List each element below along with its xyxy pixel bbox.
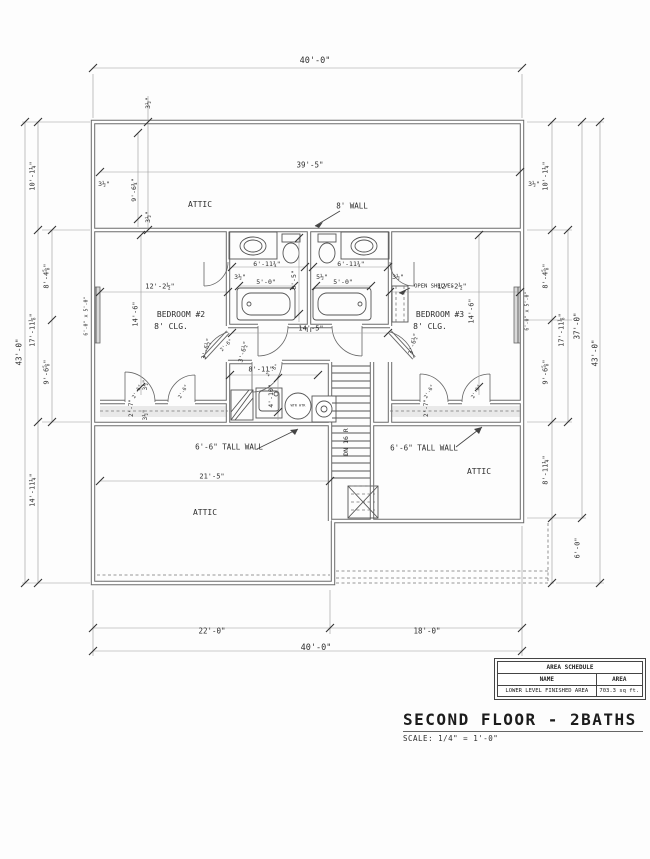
label-dim-8-4-right: 8'-4⅝" [543,263,550,288]
label-room-attic-top: ATTIC [188,201,212,209]
label-dim-4-10: 4'-10" [268,384,275,407]
area-row-value: 703.3 sq ft. [596,686,642,697]
toilet-right-tank [318,234,336,242]
label-dim-3-5-attic-right: 3½" [528,181,540,188]
open-shelves-glyph [392,286,408,322]
drawing-title: SECOND FLOOR - 2BATHS [403,710,643,732]
label-dim-43-right: 43'-0" [591,339,599,366]
label-dim-22-0: 22'-0" [198,627,225,635]
toilet-right-icon [319,243,335,263]
walls [93,122,522,583]
area-schedule-title: AREA SCHEDULE [498,662,643,674]
label-dim-14-5: 14'-5" [298,326,323,333]
label-dim-3-5-bath-left: 3½" [234,274,246,281]
label-dim-12-2-right: 12'-2½" [437,284,467,291]
area-schedule-col-name: NAME [498,674,597,686]
label-dim-8-4-left: 8'-4⅝" [44,263,51,288]
label-dim-9-6-left: 9'-6⅝" [44,359,51,384]
label-dim-5-0-left: 5'-0" [256,279,276,286]
utility-fixtures [231,388,336,422]
label-room-bedroom2-clg: 8' CLG. [154,323,188,331]
label-room-bedroom3: BEDROOM #3 [416,311,464,319]
label-note-dn-16r: DN 16 R [343,428,350,455]
label-dim-10-1-right: 10'-1¼" [543,161,550,191]
label-dim-3-5-attic-left: 3½" [98,181,110,188]
label-dim-9-6-right: 9'-6⅝" [543,359,550,384]
label-dim-14-11-left: 14'-11¼" [30,473,37,507]
label-dim-5-0-right: 5'-0" [333,279,353,286]
label-note-tall-wall-right: 6'-6" TALL WALL [390,444,458,452]
label-window-left: 6'-0" x 5'-0" [85,296,90,335]
label-room-attic-bottom-right: ATTIC [467,468,491,476]
label-note-tall-wall-left: 6'-6" TALL WALL [195,443,263,451]
toilet-left-tank [282,234,300,242]
label-dim-3-5-closet-left-a: 3½" [143,380,149,391]
label-room-bedroom2: BEDROOM #2 [157,311,205,319]
roof-break-lines [97,411,556,583]
label-dim-6-11-right: 6'-11¾" [337,261,364,268]
label-room-attic-bottom-left: ATTIC [193,509,217,517]
label-dim-40-bottom: 40'-0" [301,644,332,653]
label-dim-5-5-bath: 5½" [316,274,328,281]
label-dim-9-6-attic: 9'-6¾" [131,178,138,201]
floor-plan-sheet: 40'-0"39'-5"ATTIC8' WALL6'-11¾"6'-11¾"3½… [0,0,650,859]
table-row: LOWER LEVEL FINISHED AREA 703.3 sq ft. [498,686,643,697]
area-row-name: LOWER LEVEL FINISHED AREA [498,686,597,697]
area-schedule-col-area: AREA [596,674,642,686]
label-room-bedroom3-clg: 8' CLG. [413,323,447,331]
title-block: SECOND FLOOR - 2BATHS SCALE: 1/4" = 1'-0… [403,710,643,743]
label-dim-10-1-left: 10'-1¼" [30,161,37,191]
label-dim-43-left: 43'-0" [15,338,23,365]
area-schedule-table: AREA SCHEDULE NAME AREA LOWER LEVEL FINI… [497,661,643,697]
label-note-water-heater: WTR HTR [291,404,306,408]
label-dim-18-0: 18'-0" [413,627,440,635]
label-dim-12-2-left: 12'-2½" [145,284,175,291]
label-dim-21-5: 21'-5" [199,474,224,481]
label-dim-17-11-left: 17'-11⅛" [30,313,37,347]
label-dim-14-6-left: 14'-6" [133,301,140,326]
toilet-left-icon [283,243,299,263]
label-dim-39-5: 39'-5" [296,161,323,169]
label-dim-40-top: 40'-0" [300,57,331,66]
label-window-right: 6'-0" x 5'-0" [526,291,531,330]
label-dim-2-7-left: 2'-7" [129,399,135,417]
label-note-8ft-wall: 8' WALL [336,202,368,210]
label-dim-6-0-right: 6'-0" [575,537,582,558]
label-dim-3-5-top: 3½" [145,97,152,109]
label-dim-3-5-bath-right: 3½" [392,274,404,281]
label-dim-8-5: 8'-5" [291,270,298,290]
label-dim-8-11-right: 8'-11¼" [543,455,550,485]
drawing-scale-note: SCALE: 1/4" = 1'-0" [403,734,643,743]
label-dim-14-6-right: 14'-6" [469,298,476,323]
label-dim-6-11-left: 6'-11¾" [253,261,280,268]
label-dim-37-right: 37'-0" [573,312,581,339]
label-dim-3-5-attic-bottom: 3½" [145,211,152,223]
label-dim-3-5-closet-left-b: 3½" [143,410,149,421]
label-dim-17-11-right: 17'-11⅛" [559,313,566,347]
label-dim-2-7-right: 2'-7" [424,399,430,417]
